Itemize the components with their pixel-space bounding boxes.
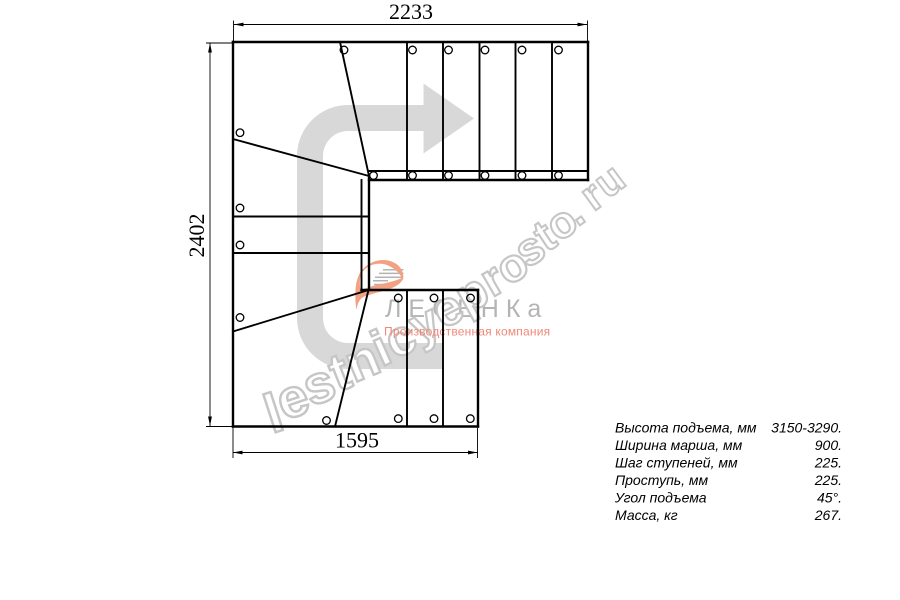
- svg-text:225.: 225.: [814, 472, 842, 488]
- svg-text:2402: 2402: [184, 214, 209, 258]
- svg-text:Высота подъема, мм: Высота подъема, мм: [615, 420, 757, 436]
- svg-text:225.: 225.: [814, 455, 842, 471]
- svg-text:Шаг ступеней, мм: Шаг ступеней, мм: [615, 455, 738, 471]
- svg-text:3150-3290.: 3150-3290.: [771, 420, 842, 436]
- svg-text:Проступь, мм: Проступь, мм: [615, 472, 709, 488]
- svg-text:1595: 1595: [335, 428, 379, 453]
- svg-text:2233: 2233: [389, 0, 433, 24]
- svg-text:900.: 900.: [815, 437, 842, 453]
- svg-text:Масса, кг: Масса, кг: [615, 507, 678, 523]
- svg-text:Угол подъема: Угол подъема: [614, 490, 707, 506]
- svg-text:Производственная компания: Производственная компания: [384, 325, 550, 339]
- svg-text:Ширина марша, мм: Ширина марша, мм: [615, 437, 743, 453]
- svg-text:45°.: 45°.: [817, 490, 842, 506]
- svg-text:267.: 267.: [814, 507, 842, 523]
